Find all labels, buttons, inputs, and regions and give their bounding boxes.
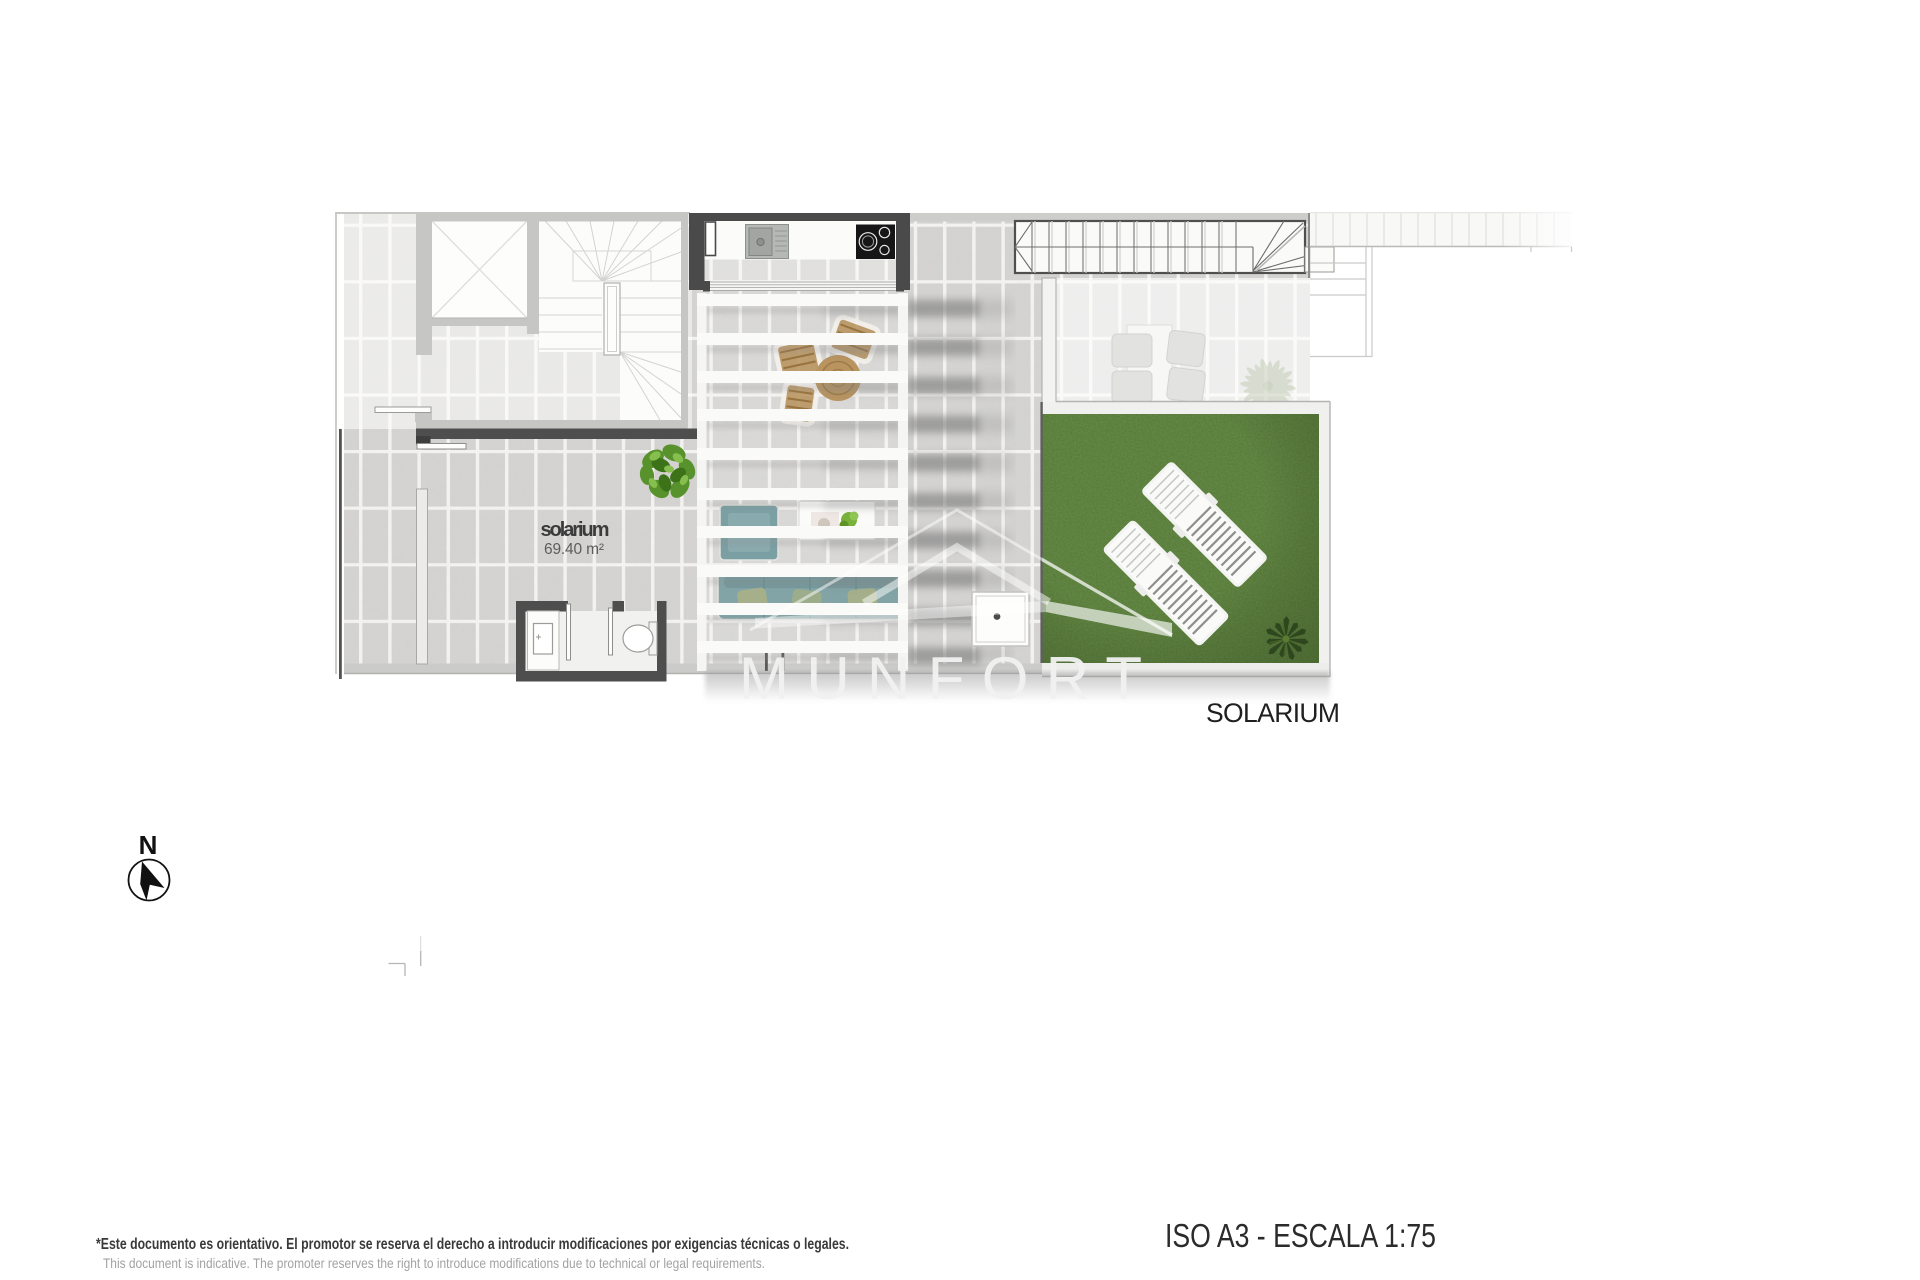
svg-text:This document is indicative. T: This document is indicative. The promote…: [103, 1255, 765, 1271]
svg-text:MUNFORT: MUNFORT: [739, 645, 1175, 712]
svg-text:69.40 m²: 69.40 m²: [544, 541, 604, 558]
svg-text:SOLARIUM: SOLARIUM: [1206, 698, 1340, 728]
svg-text:*Este documento es orientativo: *Este documento es orientativo. El promo…: [96, 1236, 849, 1253]
svg-text:solarium: solarium: [541, 519, 610, 541]
svg-text:N: N: [139, 830, 158, 860]
svg-text:ISO A3 - ESCALA 1:75: ISO A3 - ESCALA 1:75: [1165, 1218, 1436, 1255]
